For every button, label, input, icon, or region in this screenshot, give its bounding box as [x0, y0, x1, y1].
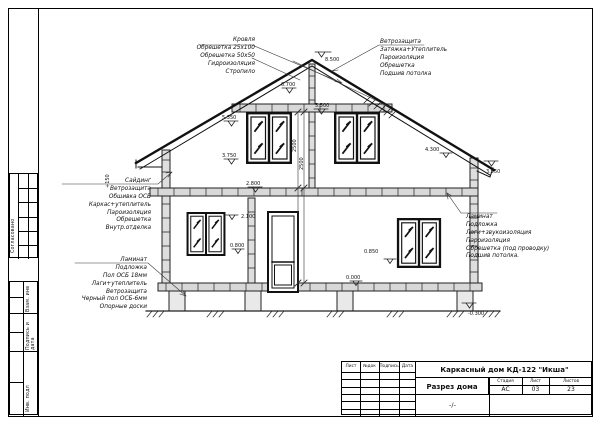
title-block: Лист №док Подпись Дата Каркасный дом КД-…: [341, 361, 592, 415]
annotation-line: Гидроизоляция: [110, 61, 255, 69]
door: [268, 212, 298, 292]
annotation-line: Черный пол ОСБ-6мм: [26, 296, 147, 304]
ceiling-layers-labels: Ламинат Подложка Лаги+звукоизоляция Паро…: [466, 214, 586, 261]
sheet-value: 03: [522, 386, 549, 393]
drawing-sheet: Согласовано Взам. инв Подпись и дата Инв…: [0, 0, 600, 424]
annotation-line: Обрешетка: [28, 217, 151, 225]
annotation-line: Обрешетка 50х50: [110, 53, 255, 61]
sheets-value: 23: [549, 386, 593, 393]
drawing-title-cell: Разрез дома: [416, 378, 489, 394]
grid-line: [342, 409, 416, 410]
annotation-line: Пол ОСБ 18мм: [26, 273, 147, 281]
elev-soffit-right: 3.950: [486, 169, 500, 175]
stage-table: Стадия Лист Листов АС 03 23: [489, 378, 593, 394]
col-sign-header: Подпись: [379, 364, 399, 369]
annotation-line: Пароизоляция: [466, 238, 586, 246]
revision-table: Лист №док Подпись Дата: [342, 362, 416, 416]
annotation-line: Подшив потолка.: [466, 253, 586, 261]
annotation-line: Внутр.отделка: [28, 225, 151, 233]
grid-line: [342, 387, 416, 388]
floor-layers-labels: Ламинат Подложка Пол ОСБ 18мм Лаги+утепл…: [26, 257, 147, 312]
annotation-line: Ветрозащита: [28, 186, 151, 194]
ground-hatch: [147, 311, 500, 317]
annotation-line: Подложка: [26, 265, 147, 273]
roof-layers-labels-left: Кровля Обрешетка 25х100 Обрешетка 50х50 …: [110, 37, 255, 76]
annotation-line: Сайдинг: [28, 178, 151, 186]
project-name: Каркасный дом КД-122 "Икша": [416, 362, 593, 378]
grid-line: [399, 362, 400, 416]
elev-right-sill: 0.850: [364, 249, 378, 255]
annotation-line: Пароизоляция: [28, 210, 151, 218]
annotation-line: Каркас+утеплитель: [28, 202, 151, 210]
annotation-line: Подшив потолка: [380, 71, 495, 79]
annotation-line: Обрешетка 25х100: [110, 45, 255, 53]
grid-line: [360, 362, 361, 416]
grid-line: [342, 372, 416, 373]
annotation-line: Обшивка ОСБ: [28, 194, 151, 202]
annotation-line: Лаги+звукоизоляция: [466, 230, 586, 238]
annotation-line: Пароизоляция: [380, 55, 495, 63]
annotation-line: Затяжка+Утеплитель: [380, 47, 495, 55]
elev-upper: 6.700: [281, 82, 295, 88]
col-doc-header: №док: [360, 364, 379, 369]
annotation-line: Кровля: [110, 37, 255, 45]
grid-line: [342, 394, 416, 395]
dim-story-lower: 2500: [299, 157, 305, 170]
annotation-line: Ламинат: [466, 214, 586, 222]
elev-win1-top: 2.100: [241, 214, 255, 220]
sheet-label: Лист: [522, 379, 549, 384]
elev-win2-sill: 3.750: [222, 153, 236, 159]
project-name-cell: Каркасный дом КД-122 "Икша": [416, 362, 593, 378]
dim-story-upper: 2500: [292, 139, 298, 152]
elev-win1-sill: 0.800: [230, 243, 244, 249]
annotation-line: Стропило: [110, 69, 255, 77]
elev-eave-right: 4.300: [425, 147, 439, 153]
col-sheet-header: Лист: [342, 364, 360, 369]
elev-ridge: 8.500: [325, 57, 339, 63]
annotation-line: Обрешетка: [380, 63, 495, 71]
wall-layers-labels: Сайдинг Ветрозащита Обшивка ОСБ Каркас+у…: [28, 178, 151, 233]
grid-line: [342, 401, 416, 402]
annotation-line: Подложка: [466, 222, 586, 230]
foundation: [146, 291, 500, 317]
scale-value: -/-: [416, 394, 489, 416]
annotation-line: Обрешетка (под проводку): [466, 246, 586, 254]
grid-line: [379, 362, 380, 416]
elev-ground: -0.300: [468, 311, 484, 317]
sheets-label: Листов: [549, 379, 593, 384]
elev-floor: 0.000: [346, 275, 360, 281]
elev-ceiling1: 2.800: [246, 181, 260, 187]
elev-ceiling2: 5.500: [315, 103, 329, 109]
scale-cell: -/-: [416, 394, 489, 416]
grid-line: [342, 379, 416, 380]
annotation-line: Ветрозащита: [380, 39, 495, 47]
col-date-header: Дата: [399, 364, 416, 369]
roof-layers-labels-right: Ветрозащита Затяжка+Утеплитель Пароизоля…: [380, 39, 495, 78]
stage-value: АС: [489, 386, 522, 393]
annotation-line: Ветрозащита: [26, 289, 147, 297]
annotation-line: Ламинат: [26, 257, 147, 265]
annotation-line: Лаги+утеплитель: [26, 281, 147, 289]
stage-label: Стадия: [489, 379, 522, 384]
elev-win2-top: 5.350: [222, 115, 236, 121]
annotation-line: Опорные доски: [26, 304, 147, 312]
